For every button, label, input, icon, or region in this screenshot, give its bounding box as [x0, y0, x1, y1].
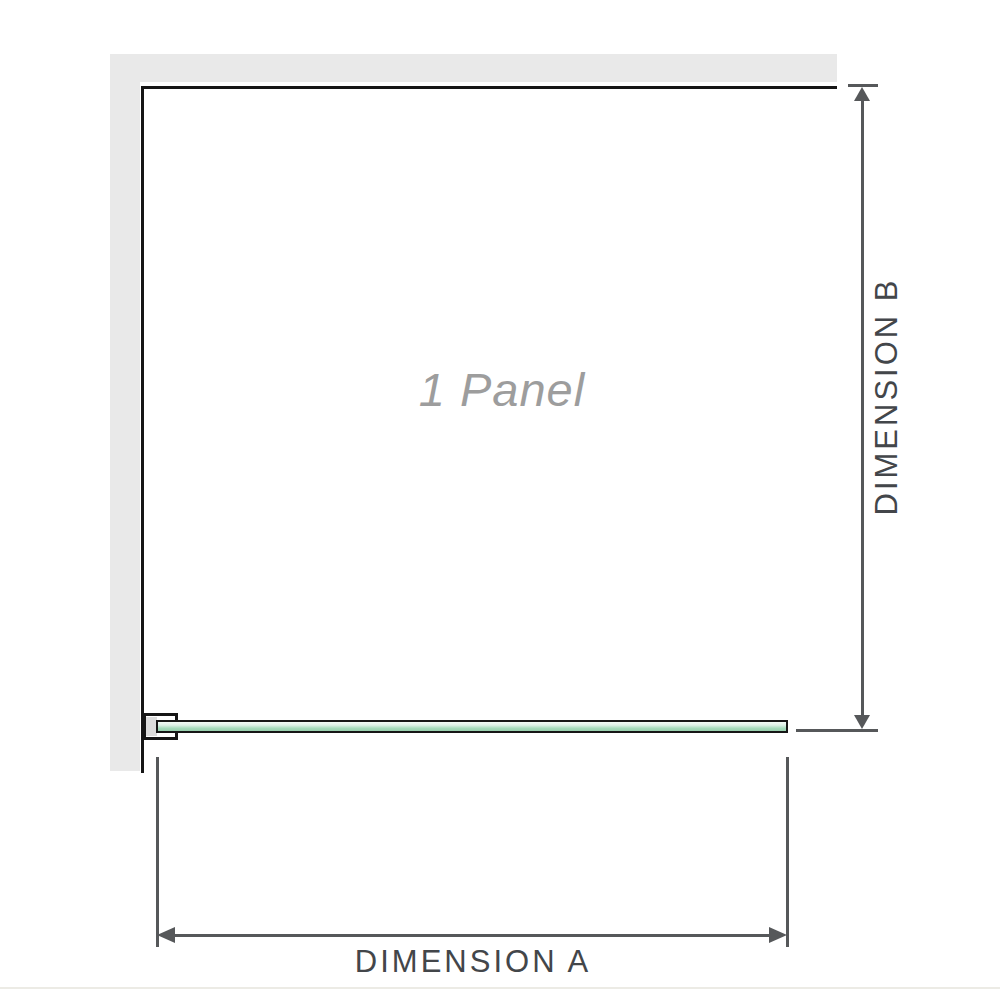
arrow-down-icon	[854, 715, 870, 729]
wall-side-band	[110, 54, 140, 771]
dimension-b-line	[861, 99, 864, 719]
panel-outline-top-line	[141, 86, 837, 89]
bottom-edge-rule	[0, 987, 1000, 989]
panel-dimension-diagram: 1 Panel DIMENSION B DIMENSION A	[0, 0, 1000, 1000]
dimension-a-right-extension-line	[786, 757, 789, 947]
dimension-b-bottom-tick	[796, 729, 878, 732]
dimension-b-label: DIMENSION B	[871, 316, 902, 516]
dimension-a-label: DIMENSION A	[323, 944, 623, 980]
dimension-a-left-extension-line	[156, 757, 159, 947]
arrow-up-icon	[854, 87, 870, 101]
wall-top-band	[110, 54, 837, 82]
panel-count-label: 1 Panel	[377, 362, 627, 417]
arrow-left-icon	[157, 927, 175, 943]
arrow-right-icon	[769, 927, 787, 943]
glass-panel	[156, 720, 788, 733]
panel-outline-left-line	[141, 86, 144, 773]
dimension-a-line	[172, 934, 776, 937]
